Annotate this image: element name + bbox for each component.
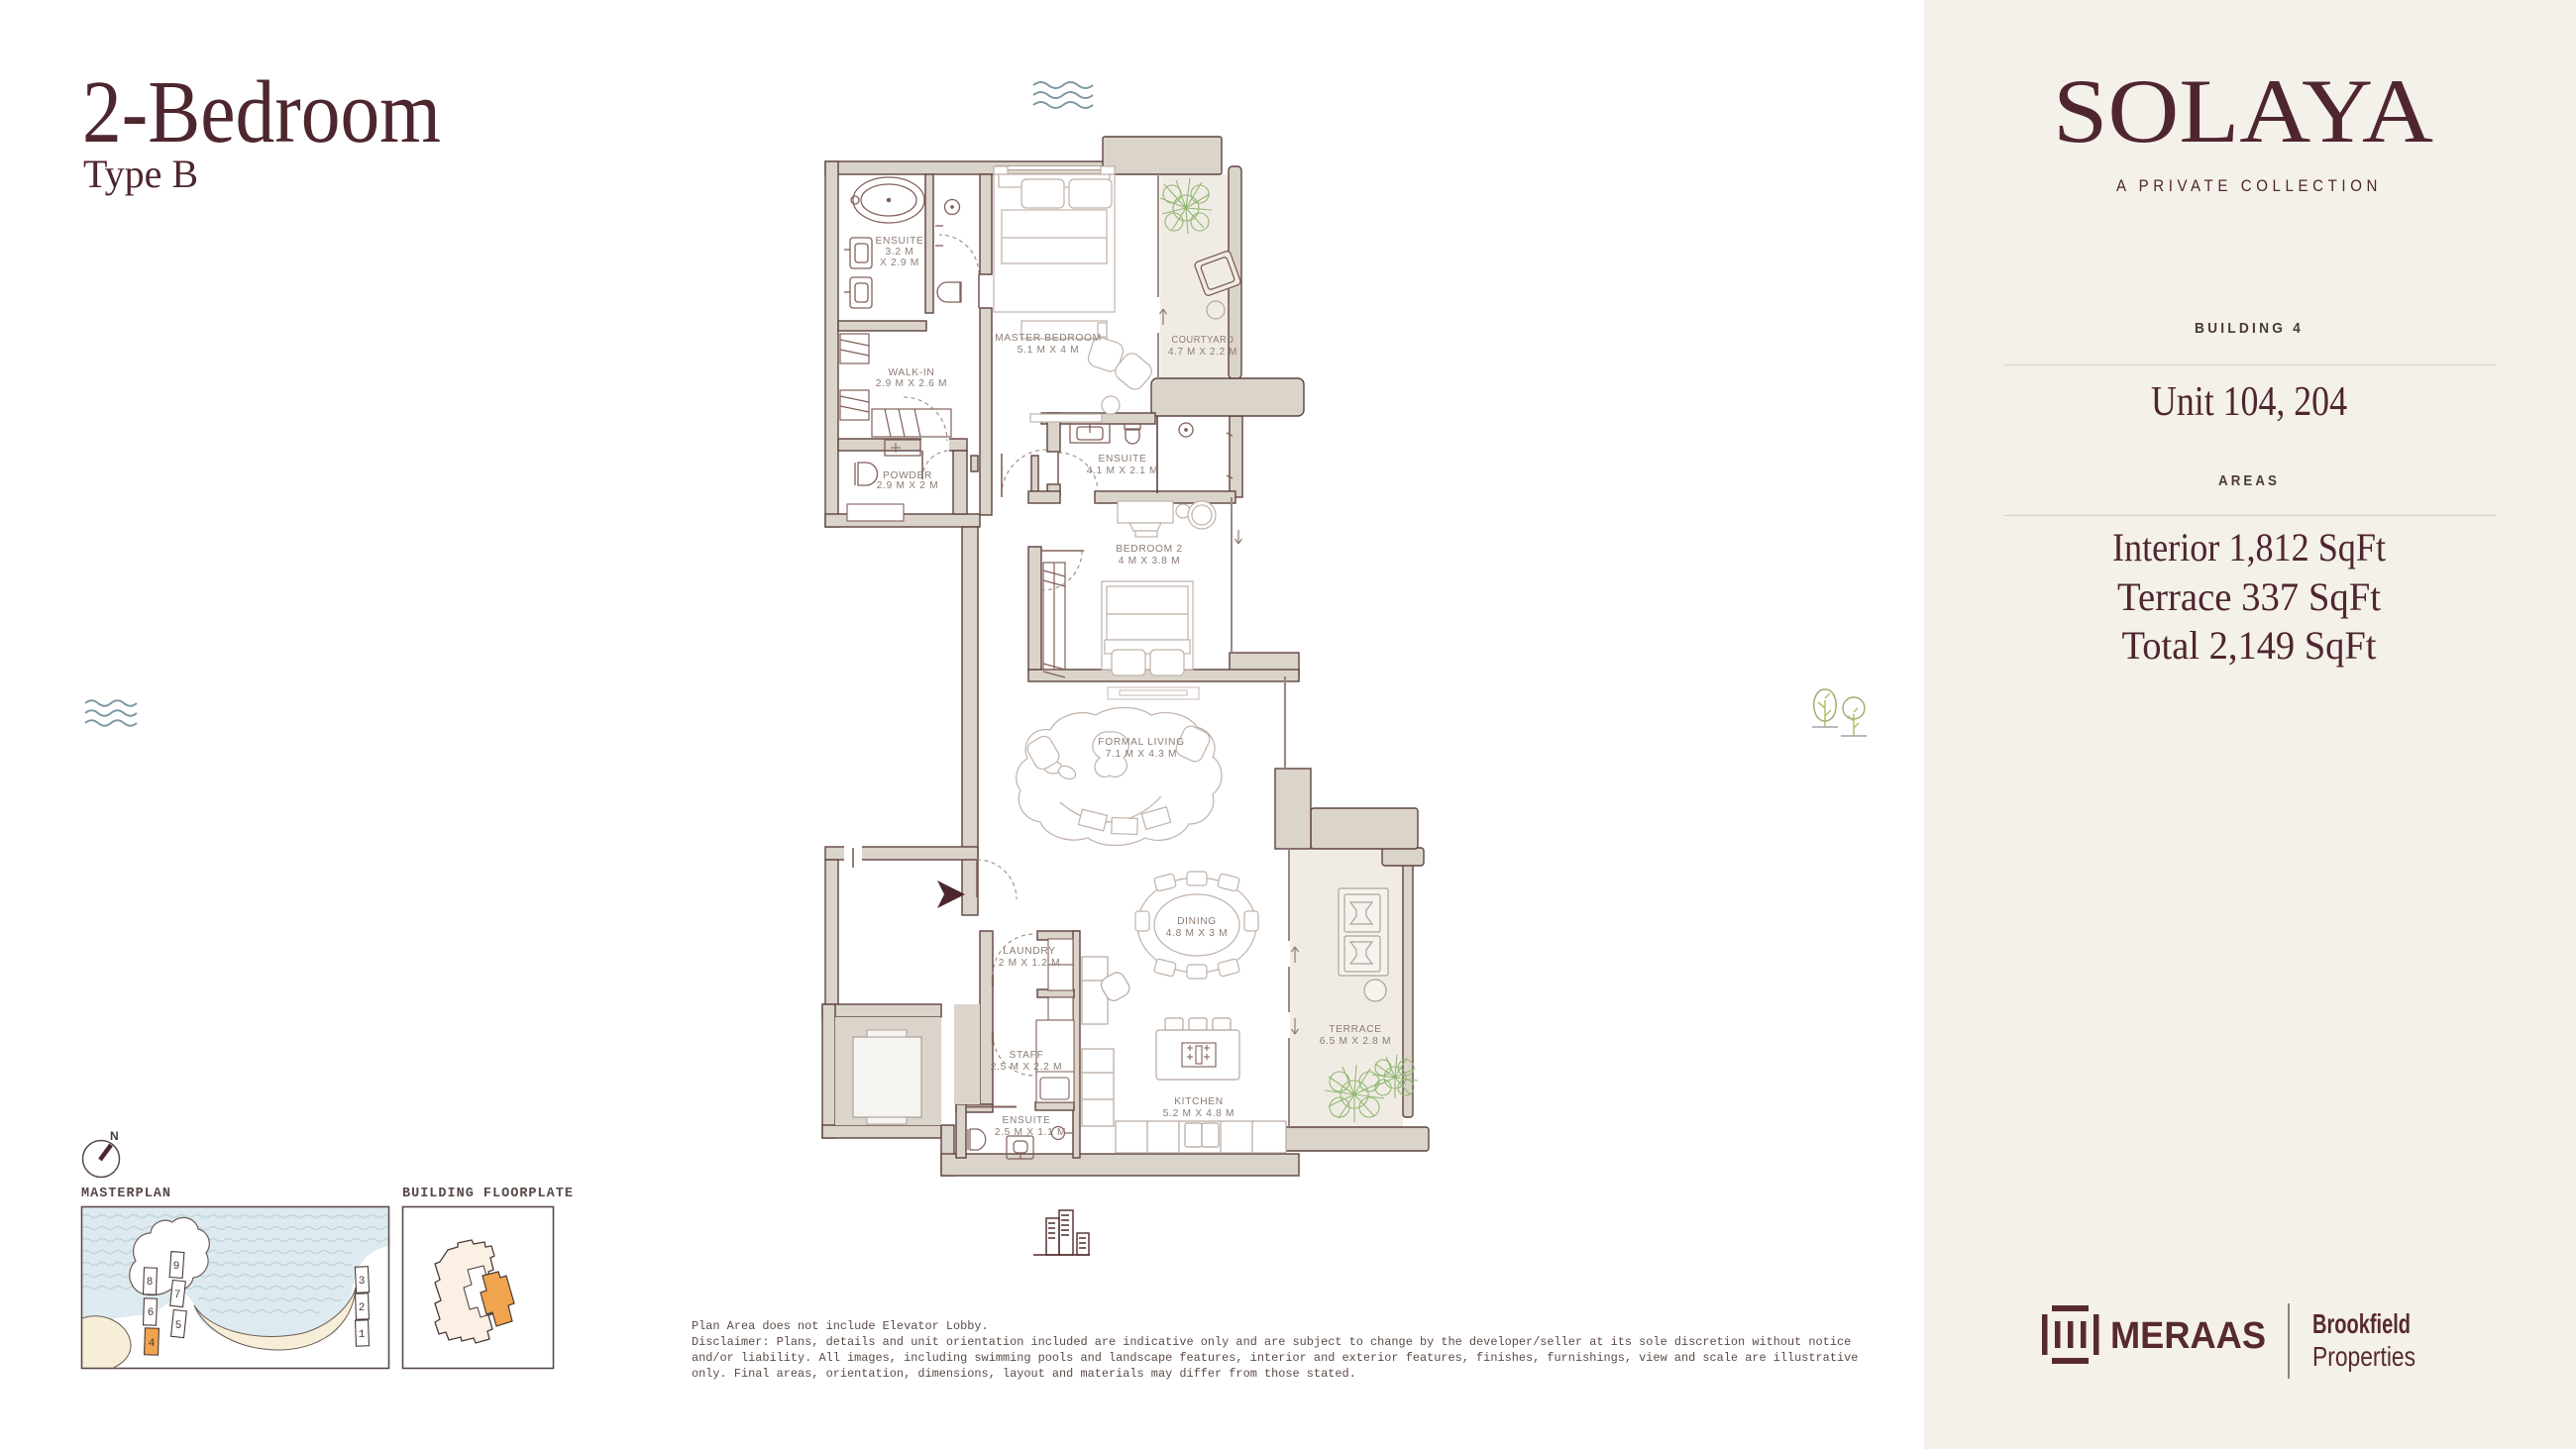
svg-text:4.1 M X 2.1 M: 4.1 M X 2.1 M (1087, 466, 1159, 476)
svg-text:4.8 M X 3 M: 4.8 M X 3 M (1166, 928, 1229, 939)
svg-text:3.2 M: 3.2 M (886, 247, 914, 258)
svg-text:TERRACE: TERRACE (1329, 1024, 1382, 1035)
svg-text:9: 9 (173, 1261, 180, 1273)
svg-text:2: 2 (359, 1302, 366, 1314)
svg-text:LAUNDRY: LAUNDRY (1003, 946, 1055, 957)
svg-text:KITCHEN: KITCHEN (1174, 1096, 1224, 1107)
svg-text:MERAAS: MERAAS (2110, 1315, 2266, 1357)
svg-text:8: 8 (147, 1277, 154, 1289)
svg-text:Properties: Properties (2312, 1341, 2415, 1372)
svg-text:MASTER BEDROOM: MASTER BEDROOM (995, 333, 1102, 344)
svg-text:X 2.9 M: X 2.9 M (880, 258, 919, 268)
svg-text:1: 1 (359, 1329, 366, 1341)
svg-text:DINING: DINING (1177, 916, 1217, 927)
svg-text:7.1 M X 4.3 M: 7.1 M X 4.3 M (1106, 749, 1178, 760)
svg-text:5.1 M X 4 M: 5.1 M X 4 M (1018, 345, 1080, 356)
svg-text:N: N (110, 1129, 119, 1143)
svg-text:2.5 M X 1.1 M: 2.5 M X 1.1 M (995, 1127, 1067, 1138)
svg-text:7: 7 (174, 1290, 181, 1301)
svg-text:WALK-IN: WALK-IN (889, 367, 935, 378)
svg-text:5: 5 (175, 1320, 182, 1332)
svg-text:ENSUITE: ENSUITE (1098, 454, 1146, 465)
svg-text:2.9 M X 2.6 M: 2.9 M X 2.6 M (876, 378, 948, 389)
svg-text:BEDROOM 2: BEDROOM 2 (1116, 544, 1182, 555)
svg-text:6: 6 (148, 1307, 155, 1319)
svg-text:5.2 M X 4.8 M: 5.2 M X 4.8 M (1163, 1108, 1235, 1119)
svg-text:FORMAL LIVING: FORMAL LIVING (1098, 737, 1184, 748)
svg-text:STAFF: STAFF (1009, 1050, 1043, 1061)
svg-text:2.9 M X 2 M: 2.9 M X 2 M (877, 480, 939, 491)
svg-text:COURTYARD: COURTYARD (1172, 335, 1234, 346)
svg-text:ENSUITE: ENSUITE (1002, 1115, 1050, 1126)
svg-text:6.5 M X 2.8 M: 6.5 M X 2.8 M (1320, 1036, 1392, 1047)
svg-text:2 M X 1.2 M: 2 M X 1.2 M (999, 958, 1061, 969)
svg-text:Brookfield: Brookfield (2312, 1308, 2411, 1339)
svg-text:3: 3 (359, 1276, 366, 1288)
svg-text:4 M X 3.8 M: 4 M X 3.8 M (1119, 556, 1181, 567)
svg-text:4: 4 (149, 1338, 156, 1350)
svg-text:ENSUITE: ENSUITE (875, 236, 923, 247)
svg-text:2.5 M X 2.2 M: 2.5 M X 2.2 M (991, 1062, 1063, 1073)
svg-text:4.7 M X 2.2 M: 4.7 M X 2.2 M (1168, 347, 1237, 358)
